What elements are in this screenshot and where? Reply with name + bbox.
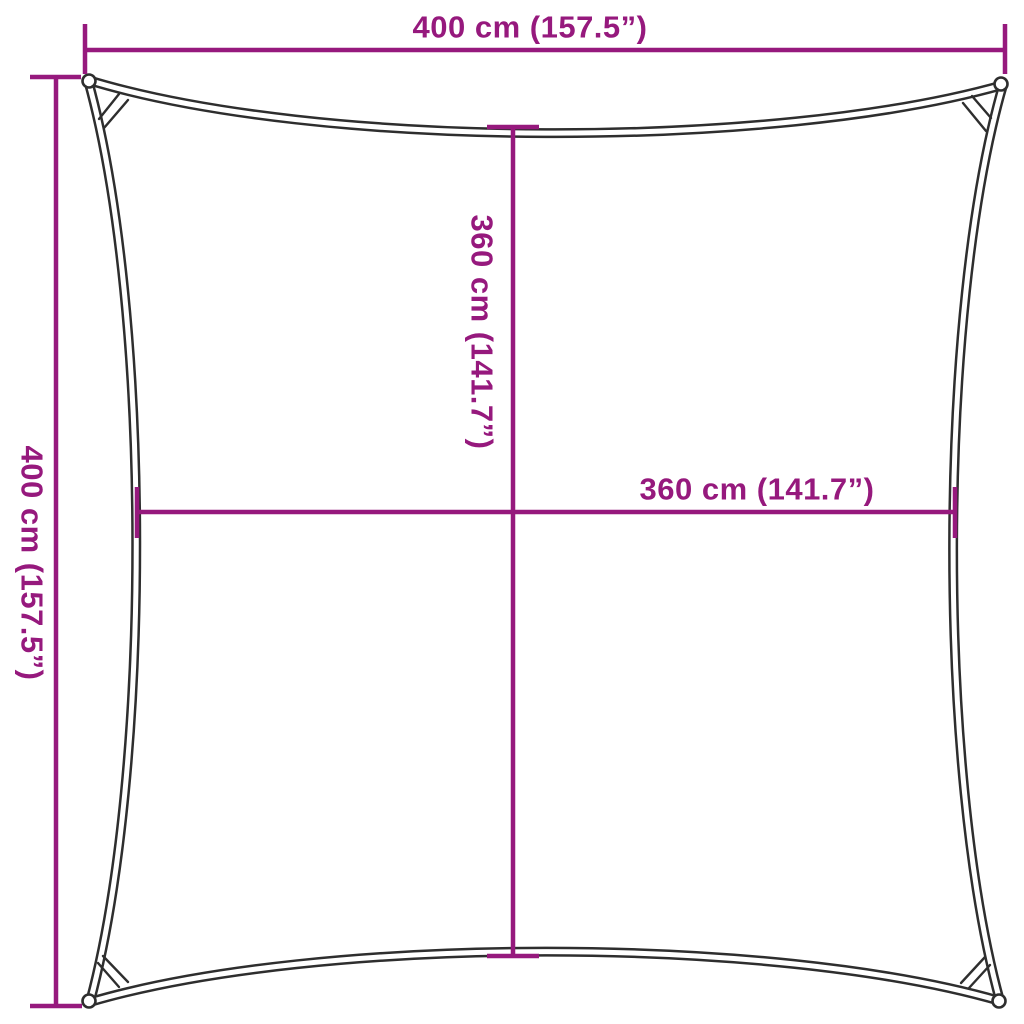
- dim-label-middle-vertical: 360 cm (141.7”): [467, 215, 498, 450]
- dim-label-middle-horizontal: 360 cm (141.7”): [640, 474, 875, 505]
- dim-label-left: 400 cm (157.5”): [17, 446, 48, 681]
- grommet-icon: [995, 78, 1008, 91]
- dim-label-top: 400 cm (157.5”): [413, 12, 648, 43]
- grommet-icon: [83, 995, 96, 1008]
- grommet-icon: [83, 75, 96, 88]
- shade-sail-dimension-diagram: 400 cm (157.5”) 400 cm (157.5”) 360 cm (…: [0, 0, 1024, 1024]
- grommet-icon: [993, 995, 1006, 1008]
- diagram-canvas: [0, 0, 1024, 1024]
- sail-outline: [88, 80, 1003, 1002]
- sail-shape: [83, 75, 1008, 1008]
